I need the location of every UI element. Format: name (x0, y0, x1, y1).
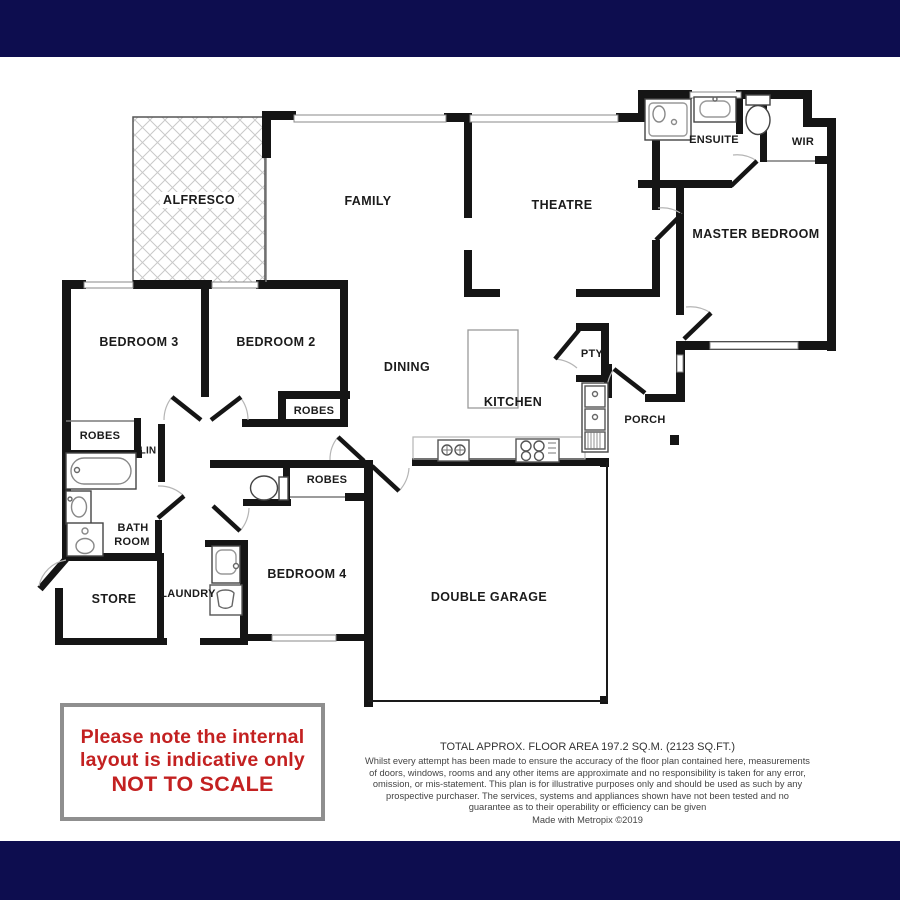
room-label-bath-line2: ROOM (114, 536, 149, 548)
oven-tower-icon (582, 383, 608, 452)
notice-box: Please note the internal layout is indic… (60, 703, 325, 821)
garage-door-edges (368, 462, 607, 701)
notice-line-3: NOT TO SCALE (111, 772, 273, 798)
ensuite-vanity-icon (694, 97, 736, 122)
room-label-bedroom3: BEDROOM 3 (99, 335, 178, 349)
room-label-ensuite: ENSUITE (689, 134, 739, 146)
wc-toilet-icon (251, 476, 289, 500)
porch-post (670, 435, 679, 445)
room-label-master-bedroom: MASTER BEDROOM (692, 227, 819, 241)
room-label-kitchen: KITCHEN (484, 395, 542, 409)
notice-line-1: Please note the internal (81, 726, 305, 749)
room-label-lin: LIN (140, 446, 157, 457)
room-label-porch: PORCH (624, 414, 665, 426)
room-label-store: STORE (92, 592, 137, 606)
disclaimer-title: TOTAL APPROX. FLOOR AREA 197.2 SQ.M. (21… (365, 741, 810, 753)
room-label-pty: PTY (581, 348, 603, 360)
disclaimer: TOTAL APPROX. FLOOR AREA 197.2 SQ.M. (21… (365, 741, 810, 825)
room-label-double-garage: DOUBLE GARAGE (431, 590, 547, 604)
room-label-bedroom2: BEDROOM 2 (236, 335, 315, 349)
disclaimer-credit: Made with Metropix ©2019 (365, 815, 810, 825)
room-label-dining: DINING (384, 360, 430, 374)
floor-plan-page: ALFRESCO FAMILY THEATRE ENSUITE WIR MAST… (0, 0, 900, 900)
bath-vanity-icon (66, 491, 91, 524)
room-label-alfresco: ALFRESCO (160, 192, 238, 208)
kitchen-sink-icon (438, 440, 469, 461)
ensuite-toilet-icon (746, 95, 770, 135)
laundry-tub-icon (212, 546, 240, 583)
room-label-robes-bed4: ROBES (307, 474, 348, 486)
room-label-robes-bed2: ROBES (294, 405, 335, 417)
shower-icon (645, 99, 691, 140)
room-label-bath-line1: BATH (118, 522, 149, 534)
bath-basin-icon (67, 523, 103, 556)
room-label-theatre: THEATRE (532, 198, 593, 212)
room-label-wir: WIR (792, 136, 814, 148)
cooktop-icon (516, 439, 559, 462)
room-label-robes-bed3: ROBES (80, 430, 121, 442)
room-label-laundry: LAUNDRY (160, 588, 215, 600)
notice-line-2: layout is indicative only (80, 749, 305, 772)
bathtub-icon (66, 453, 136, 489)
disclaimer-body: Whilst every attempt has been made to en… (365, 756, 810, 814)
room-label-bedroom4: BEDROOM 4 (267, 567, 346, 581)
room-label-family: FAMILY (344, 194, 391, 208)
